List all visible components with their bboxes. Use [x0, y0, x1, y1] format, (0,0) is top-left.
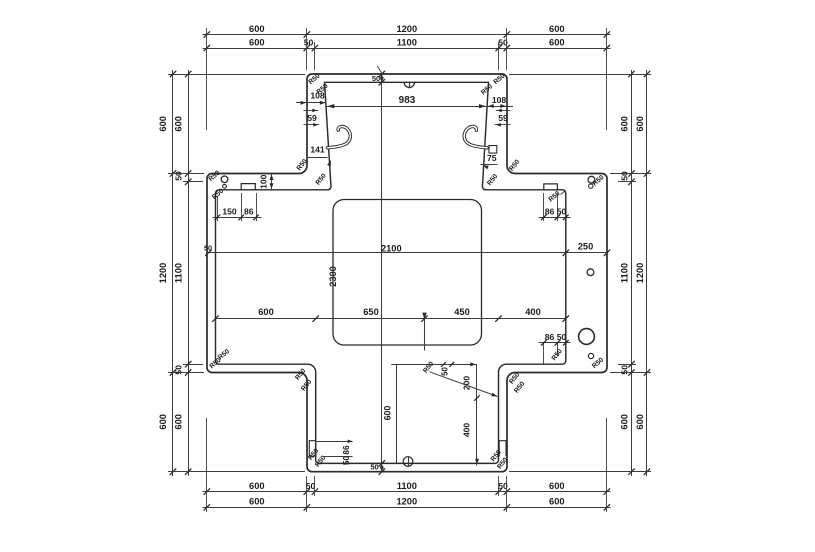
- svg-text:600: 600: [549, 24, 565, 34]
- svg-text:600: 600: [158, 414, 168, 430]
- svg-text:450: 450: [454, 307, 470, 317]
- svg-text:1200: 1200: [396, 497, 417, 507]
- svg-text:50: 50: [440, 367, 449, 376]
- svg-text:86: 86: [545, 332, 555, 342]
- svg-text:75: 75: [487, 153, 497, 163]
- svg-text:250: 250: [578, 242, 594, 252]
- svg-text:600: 600: [619, 414, 629, 430]
- svg-text:600: 600: [249, 497, 265, 507]
- svg-text:86: 86: [342, 445, 351, 455]
- svg-text:50: 50: [557, 332, 567, 342]
- svg-text:50: 50: [342, 456, 351, 466]
- svg-text:50: 50: [372, 74, 380, 83]
- svg-text:400: 400: [461, 423, 471, 438]
- svg-text:1200: 1200: [635, 263, 645, 284]
- svg-text:600: 600: [549, 37, 565, 47]
- svg-text:1100: 1100: [397, 37, 417, 47]
- svg-text:1100: 1100: [619, 263, 629, 283]
- svg-text:59: 59: [498, 113, 508, 123]
- svg-text:600: 600: [549, 481, 565, 491]
- svg-text:600: 600: [635, 414, 645, 430]
- svg-text:600: 600: [173, 414, 183, 430]
- svg-text:86: 86: [545, 206, 555, 216]
- svg-text:108: 108: [492, 95, 507, 105]
- svg-text:600: 600: [249, 481, 265, 491]
- svg-text:50: 50: [173, 171, 183, 181]
- svg-text:86: 86: [244, 207, 254, 217]
- svg-text:50: 50: [306, 481, 316, 491]
- svg-text:141: 141: [310, 145, 325, 155]
- svg-text:50: 50: [304, 37, 314, 47]
- svg-text:650: 650: [363, 307, 379, 317]
- svg-text:600: 600: [635, 116, 645, 132]
- svg-text:200: 200: [461, 376, 471, 391]
- svg-text:1200: 1200: [396, 24, 417, 34]
- svg-text:983: 983: [399, 95, 416, 106]
- svg-text:2100: 2100: [381, 244, 402, 254]
- svg-text:1100: 1100: [397, 481, 417, 491]
- svg-text:600: 600: [383, 406, 393, 421]
- svg-text:600: 600: [158, 116, 168, 132]
- svg-text:600: 600: [258, 307, 274, 317]
- svg-text:50: 50: [173, 365, 183, 375]
- svg-text:600: 600: [549, 497, 565, 507]
- svg-text:600: 600: [249, 37, 265, 47]
- svg-text:50: 50: [204, 244, 212, 253]
- svg-text:600: 600: [173, 116, 183, 132]
- svg-text:100: 100: [258, 174, 268, 189]
- svg-text:59: 59: [307, 113, 317, 123]
- svg-text:400: 400: [525, 307, 541, 317]
- svg-text:50: 50: [619, 365, 629, 375]
- svg-text:50: 50: [619, 171, 629, 181]
- svg-text:150: 150: [222, 207, 237, 217]
- svg-text:50: 50: [557, 206, 567, 216]
- svg-text:600: 600: [619, 116, 629, 132]
- svg-text:1100: 1100: [173, 263, 183, 283]
- svg-text:600: 600: [249, 24, 265, 34]
- svg-text:50: 50: [370, 462, 378, 471]
- svg-text:1200: 1200: [158, 263, 168, 284]
